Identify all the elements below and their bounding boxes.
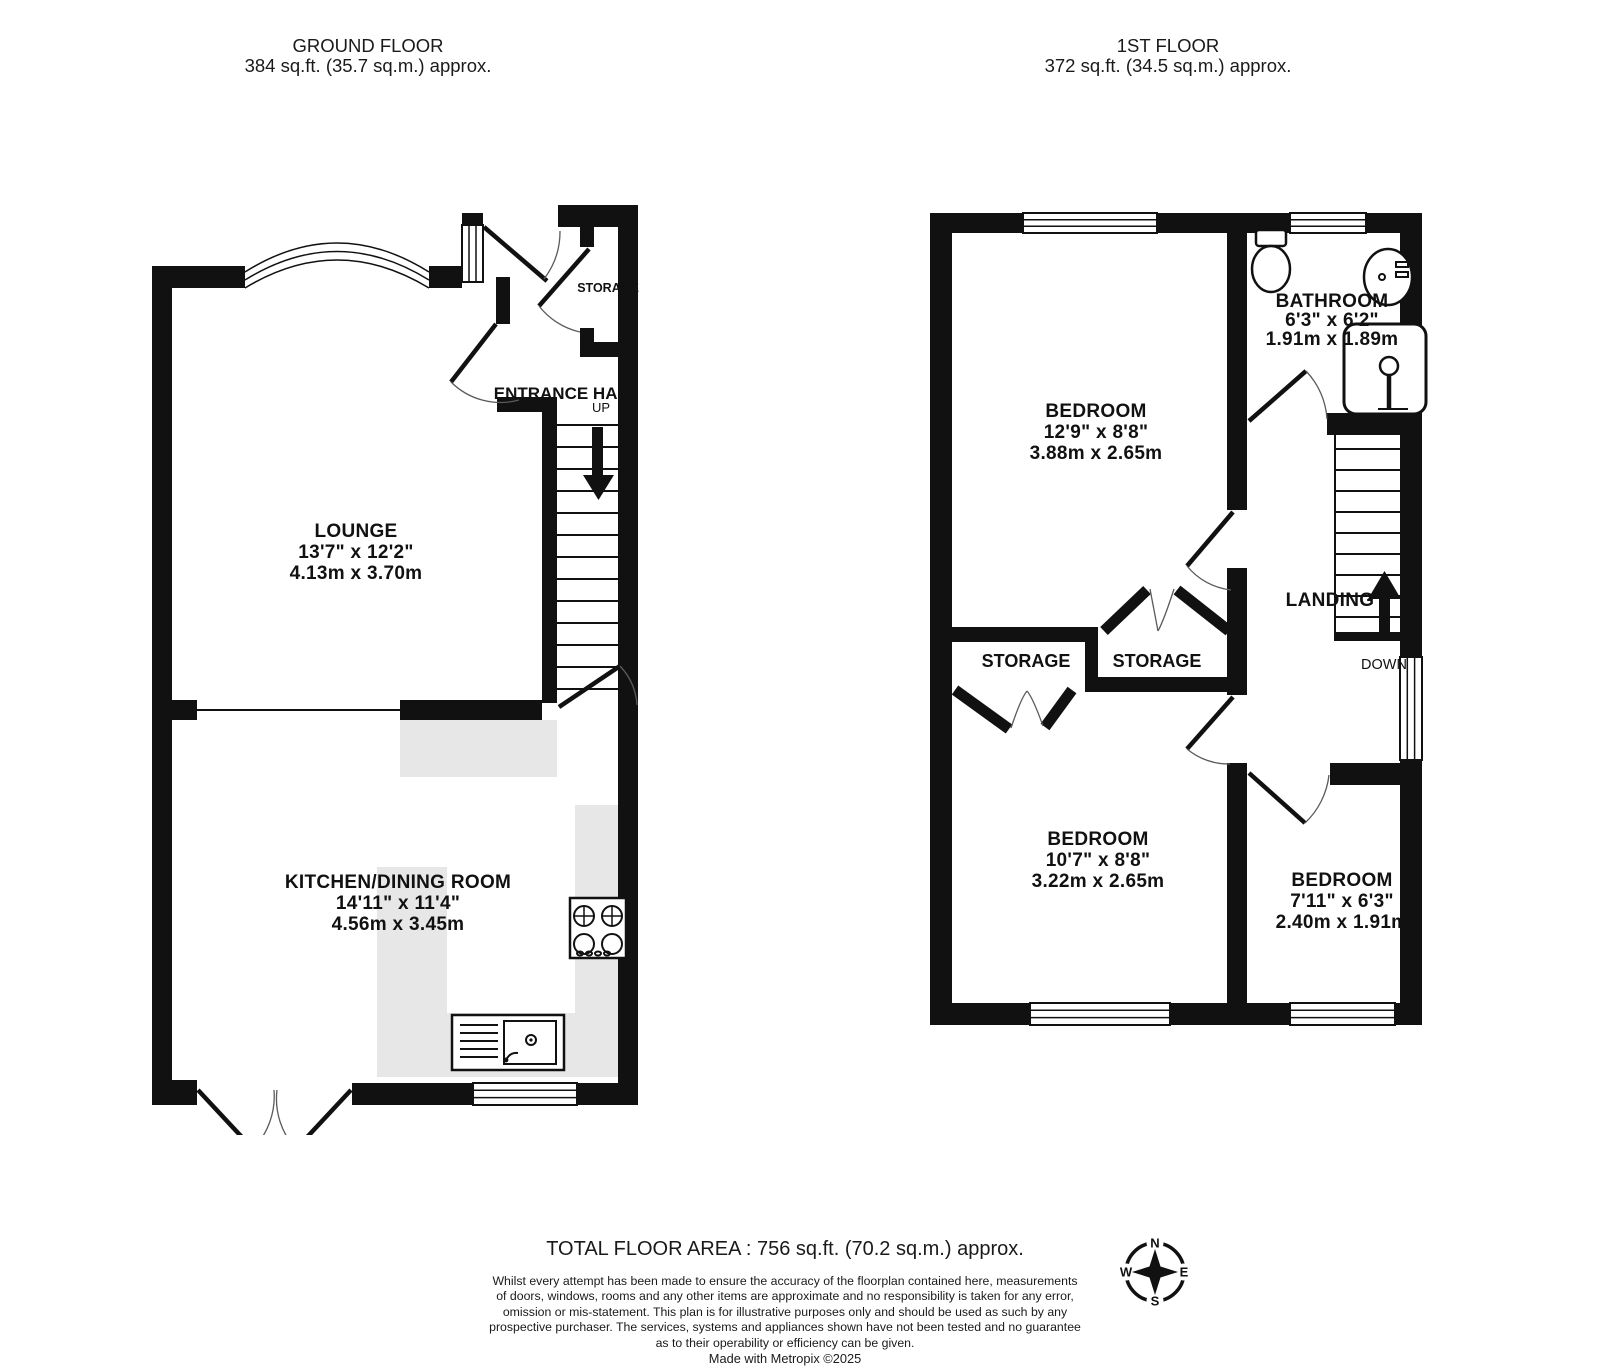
first-floor-title: 1ST FLOOR [918,36,1418,56]
kitchen-dims-metric: 4.56m x 3.45m [332,914,465,935]
toilet [1252,230,1290,292]
credit-line: Made with Metropix ©2025 [385,1351,1185,1366]
ground-floor-header: GROUND FLOOR 384 sq.ft. (35.7 sq.m.) app… [118,36,618,75]
disclaimer-line: omission or mis-statement. This plan is … [385,1305,1185,1320]
up-label: UP [592,400,610,415]
first-floor-header: 1ST FLOOR 372 sq.ft. (34.5 sq.m.) approx… [918,36,1418,75]
floorplan-page: GROUND FLOOR 384 sq.ft. (35.7 sq.m.) app… [0,0,1600,1368]
bedroom3-dims-imperial: 7'11" x 6'3" [1290,891,1394,912]
down-arrow-shaft [1379,596,1390,636]
first-floor-plan: BEDROOM 12'9" x 8'8" 3.88m x 2.65m BATHR… [920,200,1440,1040]
hall-window [462,213,483,282]
bathroom-label: BATHROOM [1276,291,1389,312]
ground-storage-label: STORAGE [577,281,639,295]
disclaimer: Whilst every attempt has been made to en… [385,1274,1185,1351]
storage-left-label: STORAGE [982,651,1071,671]
bedroom3-door [1249,773,1329,823]
kitchen-sink [452,1015,564,1070]
storage-mid-door [1104,589,1229,631]
compass-south: S [1151,1294,1160,1309]
compass-north: N [1150,1236,1159,1251]
bedroom1-label: BEDROOM [1045,401,1146,422]
entrance-hall-label: ENTRANCE HALL [494,384,639,403]
landing-label: LANDING [1286,590,1375,611]
ground-floor-title: GROUND FLOOR [118,36,618,56]
footer: TOTAL FLOOR AREA : 756 sq.ft. (70.2 sq.m… [385,1238,1185,1366]
bedroom2-door [1187,697,1233,764]
compass-east: E [1180,1265,1189,1280]
bedroom1-dims-metric: 3.88m x 2.65m [1030,443,1163,464]
disclaimer-line: Whilst every attempt has been made to en… [385,1274,1185,1289]
kitchen-window [473,1083,577,1105]
lounge-dims-metric: 4.13m x 3.70m [290,563,423,584]
storage-left-door [955,690,1072,729]
bedroom3-label: BEDROOM [1291,870,1392,891]
down-label: DOWN [1361,657,1407,673]
bedroom3-dims-metric: 2.40m x 1.91m [1276,912,1409,933]
disclaimer-line: of doors, windows, rooms and any other i… [385,1289,1185,1304]
bathroom-dims-imperial: 6'3" x 6'2" [1285,310,1379,331]
bedroom2-label: BEDROOM [1047,829,1148,850]
french-doors [198,1090,351,1135]
up-arrow-head [583,475,614,500]
ground-floor-plan: LOUNGE 13'7" x 12'2" 4.13m x 3.70m KITCH… [140,195,660,1135]
lounge-dims-imperial: 13'7" x 12'2" [298,542,413,563]
bow-window [245,243,429,288]
front-door [484,227,560,281]
disclaimer-line: prospective purchaser. The services, sys… [385,1320,1185,1335]
compass-west: W [1120,1265,1133,1280]
bedroom2-dims-metric: 3.22m x 2.65m [1032,871,1165,892]
up-arrow-shaft [592,427,603,475]
storage-mid-label: STORAGE [1113,651,1202,671]
disclaimer-line: as to their operability or efficiency ca… [385,1336,1185,1351]
kitchen-label: KITCHEN/DINING ROOM [285,872,511,893]
kitchen-dims-imperial: 14'11" x 11'4" [336,893,460,914]
lounge-label: LOUNGE [314,521,397,542]
compass-star [1132,1249,1178,1295]
total-floor-area: TOTAL FLOOR AREA : 756 sq.ft. (70.2 sq.m… [385,1238,1185,1260]
bedroom1-dims-imperial: 12'9" x 8'8" [1044,422,1149,443]
compass-rose-icon: N E S W [1105,1222,1205,1322]
bathroom-dims-metric: 1.91m x 1.89m [1266,329,1399,350]
staircase-up [557,425,618,689]
first-floor-area: 372 sq.ft. (34.5 sq.m.) approx. [918,56,1418,76]
bathroom-door [1249,371,1327,421]
hob [570,898,626,958]
bedroom1-door [1187,512,1233,590]
ground-floor-area: 384 sq.ft. (35.7 sq.m.) approx. [118,56,618,76]
bedroom2-dims-imperial: 10'7" x 8'8" [1046,850,1151,871]
